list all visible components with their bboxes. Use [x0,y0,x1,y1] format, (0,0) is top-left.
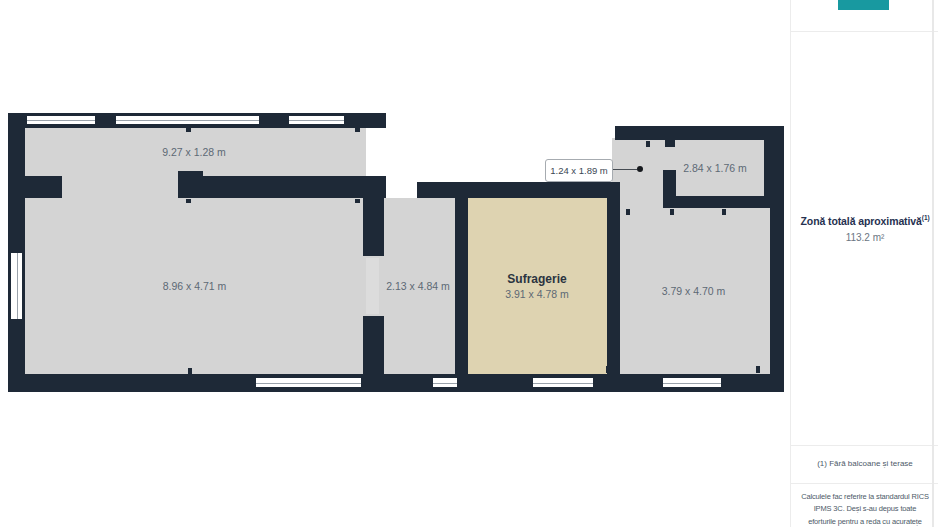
wall-segment [770,208,784,378]
window [532,377,594,388]
primary-action-button[interactable] [838,0,889,10]
door-mark [756,366,760,373]
room-sufragerie: Sufragerie 3.91 x 4.78 m [462,196,612,376]
total-area-block: Zonă totală aproximativă(1) 113.2 m² [791,214,938,243]
room-sufragerie-label: Sufragerie 3.91 x 4.78 m [505,272,569,300]
door-mark [186,199,191,203]
window [26,115,96,125]
room-narrow-dims: 2.13 x 4.84 m [386,280,450,292]
measurement-callout-label: 1.24 x 1.89 m [550,165,608,176]
total-area-title-text: Zonă totală aproximativă [801,215,922,227]
room-top-right-dims: 2.84 x 1.76 m [683,162,747,174]
door-mark [20,199,25,203]
window [255,377,362,388]
room-balcony-dims: 9.27 x 1.28 m [162,146,226,158]
wall-segment [16,176,62,198]
divider [791,483,938,484]
floor-plan: 9.27 x 1.28 m 8.96 x 4.71 m 2.13 x 4.84 … [0,0,790,527]
door-mark [456,366,460,373]
door-mark [646,141,650,147]
room-large-dims: 8.96 x 4.71 m [163,280,227,292]
disclaimer-text: Calculele fac referire la standardul RIC… [791,491,938,527]
wall-segment [363,198,384,256]
room-large: 8.96 x 4.71 m [22,176,367,376]
room-top-right: 2.84 x 1.76 m [665,138,765,198]
wall-segment [607,182,620,392]
scrollbar[interactable] [932,0,934,527]
window [115,115,260,125]
divider [791,31,938,32]
total-area-title: Zonă totală aproximativă(1) [791,214,938,227]
door-mark [188,368,192,374]
wall-segment [178,176,386,198]
door-mark [20,128,25,132]
door-mark [186,128,191,132]
disclaimer-line-1: Calculele fac referire la standardul RIC… [791,491,938,503]
area-footnote: (1) Fără balcoane și terase [791,459,938,468]
total-area-footnote-ref: (1) [922,214,930,221]
room-right: 3.79 x 4.70 m [615,206,772,376]
disclaimer-line-2: IPMS 3C. Deși s-au depus toate [791,503,938,515]
wall-segment [663,196,784,208]
window [662,377,722,388]
disclaimer-line-3: eforturile pentru a reda cu acuratețe [791,516,938,527]
wall-segment [455,182,468,374]
wall-segment [178,171,203,178]
door-mark [722,209,726,215]
door-mark [355,128,360,132]
door-mark [665,140,675,147]
door-mark [606,366,610,373]
window [432,377,458,388]
door-mark [626,209,630,215]
window [288,115,345,125]
wall-segment [363,316,384,374]
wall-segment [417,182,620,198]
callout-leader-line [612,169,637,170]
room-sufragerie-name: Sufragerie [507,272,566,286]
total-area-value: 113.2 m² [791,232,938,243]
wall-segment [663,170,676,198]
door-mark [355,199,360,203]
app-window: 9.27 x 1.28 m 8.96 x 4.71 m 2.13 x 4.84 … [0,0,938,527]
room-right-dims: 3.79 x 4.70 m [662,285,726,297]
divider [791,445,938,446]
room-hallway [612,138,668,210]
door-panel [366,258,379,314]
wall-segment [615,126,784,140]
door-mark [670,209,674,215]
sidebar-panel: Zonă totală aproximativă(1) 113.2 m² (1)… [790,0,938,527]
measurement-callout: 1.24 x 1.89 m [545,159,613,182]
window [10,252,23,320]
callout-target-dot [637,166,643,172]
room-sufragerie-dims: 3.91 x 4.78 m [505,288,569,300]
